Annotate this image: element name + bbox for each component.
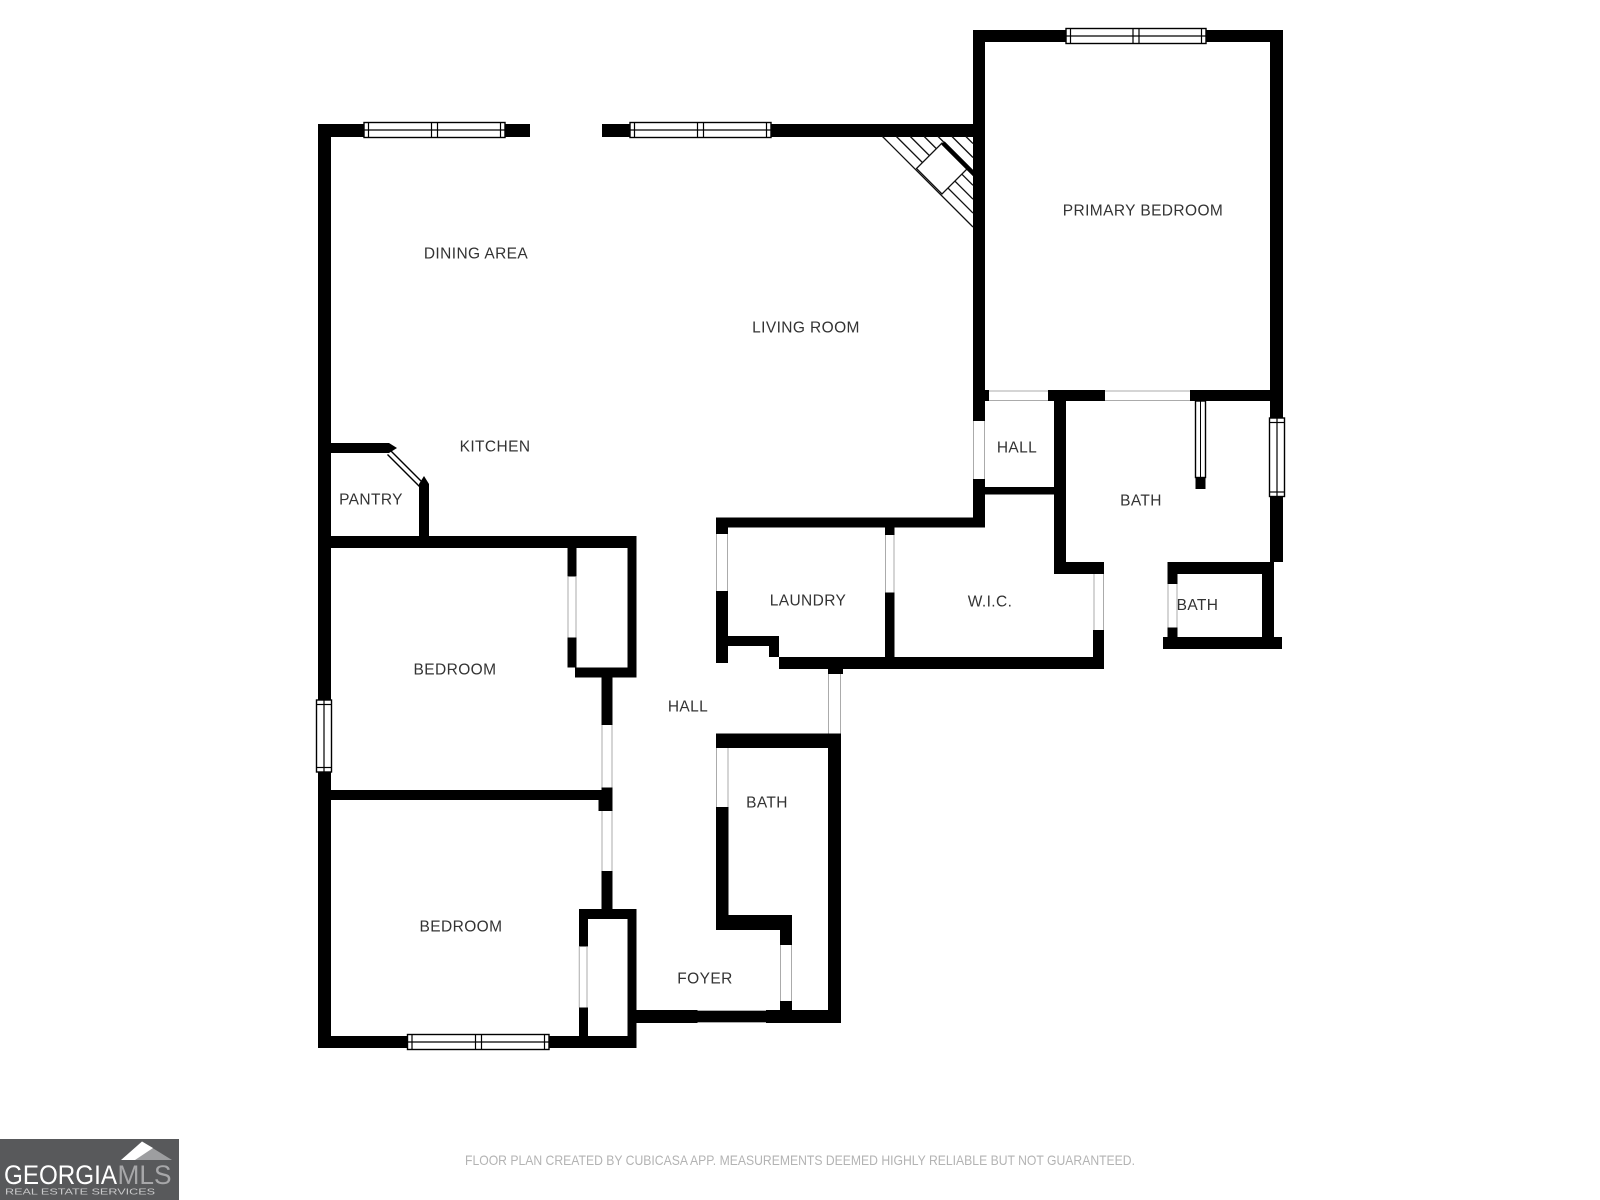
svg-text:PRIMARY BEDROOM: PRIMARY BEDROOM — [1063, 203, 1223, 220]
svg-text:DINING AREA: DINING AREA — [424, 246, 529, 263]
svg-text:HALL: HALL — [997, 440, 1037, 457]
svg-text:MLS: MLS — [118, 1160, 172, 1190]
svg-text:LAUNDRY: LAUNDRY — [770, 593, 847, 610]
svg-text:GEORGIA: GEORGIA — [4, 1160, 117, 1190]
svg-text:HALL: HALL — [668, 699, 708, 716]
svg-text:BATH: BATH — [746, 795, 788, 812]
svg-text:KITCHEN: KITCHEN — [460, 439, 531, 456]
svg-text:BEDROOM: BEDROOM — [420, 919, 503, 936]
svg-text:BATH: BATH — [1120, 493, 1162, 510]
svg-text:W.I.C.: W.I.C. — [968, 594, 1013, 611]
svg-text:BATH: BATH — [1177, 597, 1219, 614]
svg-text:FOYER: FOYER — [677, 971, 732, 988]
svg-text:LIVING ROOM: LIVING ROOM — [752, 320, 860, 337]
svg-text:FLOOR PLAN CREATED BY CUBICASA: FLOOR PLAN CREATED BY CUBICASA APP. MEAS… — [465, 1152, 1135, 1168]
svg-text:PANTRY: PANTRY — [339, 492, 403, 509]
svg-text:BEDROOM: BEDROOM — [414, 662, 497, 679]
svg-text:REAL ESTATE SERVICES: REAL ESTATE SERVICES — [5, 1187, 155, 1197]
